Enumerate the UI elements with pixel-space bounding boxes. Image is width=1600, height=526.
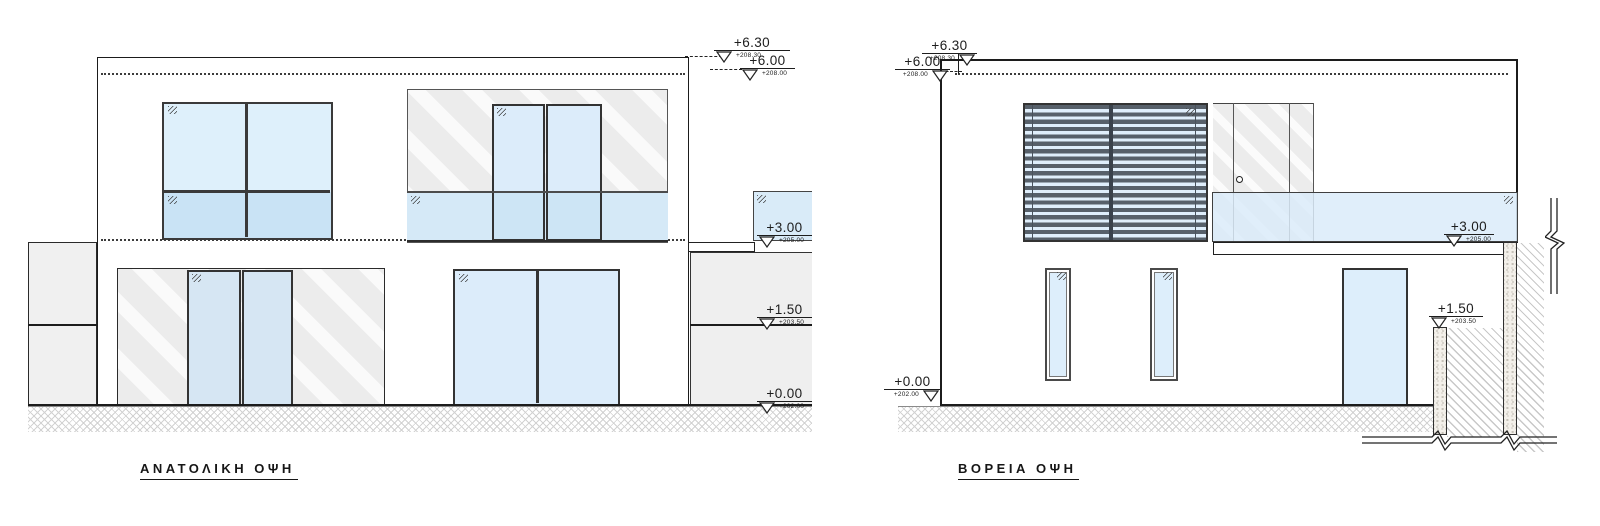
louver-stile xyxy=(1195,105,1196,240)
level-datum: +203.50 xyxy=(779,319,804,326)
level-marker-triangle-icon xyxy=(759,318,775,330)
narrow-window-2 xyxy=(1150,268,1178,381)
glass-pane-tick-icon xyxy=(168,106,177,114)
level-marker-630: +6.30 +208.30 xyxy=(922,39,977,54)
glass-pane-tick-icon xyxy=(192,274,201,282)
glass-pane-tick-icon xyxy=(1186,108,1195,116)
level-datum: +203.50 xyxy=(1451,318,1476,325)
break-line-icon xyxy=(1362,430,1557,452)
level-datum: +205.00 xyxy=(779,237,804,244)
level-marker-150: +1.50 +203.50 xyxy=(1429,302,1483,317)
level-marker-triangle-icon xyxy=(932,70,948,82)
retaining-wall-outer xyxy=(1503,242,1517,435)
level-marker-600: +6.00 +208.00 xyxy=(895,55,950,70)
glass-pane-tick-icon xyxy=(459,274,468,282)
glass-pane-tick-icon xyxy=(497,108,506,116)
level-marker-triangle-icon xyxy=(959,54,975,66)
level-value: +3.00 xyxy=(757,221,812,235)
ground-hatch xyxy=(898,406,1434,432)
level-datum: +208.00 xyxy=(762,70,787,77)
window-transom xyxy=(164,190,330,193)
boundary-wall-step-line xyxy=(28,324,97,326)
elevation-drawing-sheet: +6.30 +208.30 +6.00 +208.00 +3.00 +205.0… xyxy=(0,0,1600,526)
ground-sliding-window xyxy=(453,269,620,406)
level-marker-300: +3.00 +205.00 xyxy=(1444,220,1494,235)
break-line-icon xyxy=(1545,198,1565,294)
level-datum: +202.00 xyxy=(779,403,804,410)
glass-pane-tick-icon xyxy=(411,196,420,204)
right-building-roof-line xyxy=(940,59,1518,61)
glass-pane-tick-icon xyxy=(1163,272,1172,280)
earth-fill xyxy=(1447,328,1503,437)
glass-pane-tick-icon xyxy=(757,195,766,203)
level-value: +1.50 xyxy=(1429,302,1483,316)
balcony-door-left xyxy=(492,104,545,241)
level-value: +1.50 xyxy=(757,303,812,317)
roof-level-dotted-line xyxy=(955,73,1508,75)
level-datum: +208.00 xyxy=(903,71,928,78)
door-handle-icon xyxy=(1236,176,1243,183)
level-marker-triangle-icon xyxy=(759,236,775,248)
level-marker-000: +0.00 +202.00 xyxy=(884,375,941,390)
ground-window-large xyxy=(1342,268,1408,406)
level-value: +6.30 xyxy=(922,39,977,53)
level-marker-triangle-icon xyxy=(759,402,775,414)
stair-landing-step xyxy=(688,242,755,252)
level-marker-triangle-icon xyxy=(716,51,732,63)
level-marker-triangle-icon xyxy=(923,390,939,402)
window-mullion xyxy=(245,104,248,237)
level-value: +3.00 xyxy=(1444,220,1494,234)
balcony-door-right xyxy=(546,104,602,241)
level-value: +6.00 xyxy=(740,54,795,68)
level-datum: +202.00 xyxy=(894,391,919,398)
level-marker-triangle-icon xyxy=(1446,235,1462,247)
upper-left-window xyxy=(162,102,333,240)
glass-pane-tick-icon xyxy=(1057,272,1066,280)
level-marker-triangle-icon xyxy=(742,69,758,81)
level-value: +0.00 xyxy=(757,387,812,401)
glass-pane-tick-icon xyxy=(1504,196,1513,204)
right-building-left-edge xyxy=(940,59,942,405)
window-glass xyxy=(1049,272,1067,377)
window-glass xyxy=(1154,272,1174,377)
ground-hatch xyxy=(28,406,812,432)
louver-stile xyxy=(1032,105,1033,240)
louver-stile xyxy=(1109,105,1113,240)
level-marker-600: +6.00 +208.00 xyxy=(740,54,795,69)
retaining-wall-inner xyxy=(1433,327,1447,435)
level-marker-triangle-icon xyxy=(1431,317,1447,329)
level-value: +6.00 xyxy=(895,55,950,69)
glass-pane-tick-icon xyxy=(168,196,177,204)
narrow-window-1 xyxy=(1045,268,1071,381)
level-marker-300: +3.00 +205.00 xyxy=(757,221,812,236)
right-elevation-title: ΒΟΡΕΙΑ ΟΨΗ xyxy=(958,461,1079,480)
entrance-door-right xyxy=(242,270,293,406)
roof-level-dotted-line xyxy=(101,73,685,75)
left-elevation-title: ΑΝΑΤΟΛΙΚΗ ΟΨΗ xyxy=(140,461,298,480)
level-dash-line xyxy=(710,69,742,70)
louver-screen xyxy=(1023,103,1208,242)
level-value: +0.00 xyxy=(884,375,941,389)
earth-fill xyxy=(1517,243,1544,452)
window-mullion xyxy=(536,271,539,403)
level-marker-630: +6.30 +208.30 xyxy=(714,36,790,51)
right-side-wall xyxy=(690,252,812,405)
railing-top-edge xyxy=(407,191,668,193)
level-datum: +205.00 xyxy=(1466,236,1491,243)
level-marker-150: +1.50 +203.50 xyxy=(757,303,812,318)
entrance-door-left xyxy=(187,270,241,406)
level-marker-000: +0.00 +202.00 xyxy=(757,387,812,402)
balcony-slab-edge xyxy=(407,240,668,242)
level-value: +6.30 xyxy=(714,36,790,50)
